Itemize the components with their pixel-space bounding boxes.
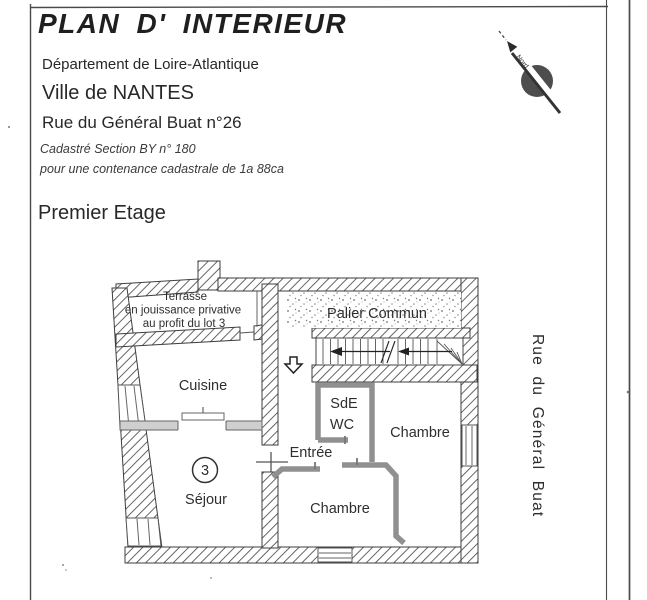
living-room-label: Séjour <box>185 492 227 508</box>
floor-plan-drawing: Nord Rue du Général Buat <box>0 0 647 600</box>
terrace-label-line1: Terrasse <box>163 291 207 303</box>
terrace-label-line2: en jouissance privative <box>125 305 241 317</box>
bottom-wall <box>125 547 478 563</box>
right-wall <box>461 278 478 563</box>
kitchen-top-wall <box>116 327 240 347</box>
landing-label: Palier Commun <box>327 306 427 322</box>
kitchen-label: Cuisine <box>179 378 227 394</box>
bedroom-right-label: Chambre <box>390 425 450 441</box>
chimney-wall <box>198 261 220 290</box>
door-leaf <box>182 413 224 420</box>
lot-number-label: 3 <box>201 463 209 479</box>
bedroom-bottom-label: Chambre <box>310 501 370 517</box>
staircase <box>316 338 463 365</box>
stairs-bottom-wall <box>312 365 477 382</box>
middle-wall-upper <box>262 284 278 445</box>
hall-partition-left <box>273 469 320 477</box>
kitchen-top-wall-end <box>254 325 262 340</box>
top-wall-right <box>218 278 477 291</box>
street-name-label: Rue du Général Buat <box>529 334 546 517</box>
shower-room-label: SdE <box>330 396 358 412</box>
wc-label: WC <box>330 417 354 433</box>
north-compass-icon: Nord <box>499 31 563 113</box>
stairs-top-wall <box>312 328 470 338</box>
entrance-door-arrow-icon <box>285 357 302 373</box>
entrance-label: Entrée <box>290 445 333 461</box>
terrace-label-line3: au profit du lot 3 <box>143 318 225 330</box>
middle-wall-lower <box>262 472 278 548</box>
scanned-plan-page: PLAN D' INTERIEUR Département de Loire-A… <box>0 0 647 600</box>
